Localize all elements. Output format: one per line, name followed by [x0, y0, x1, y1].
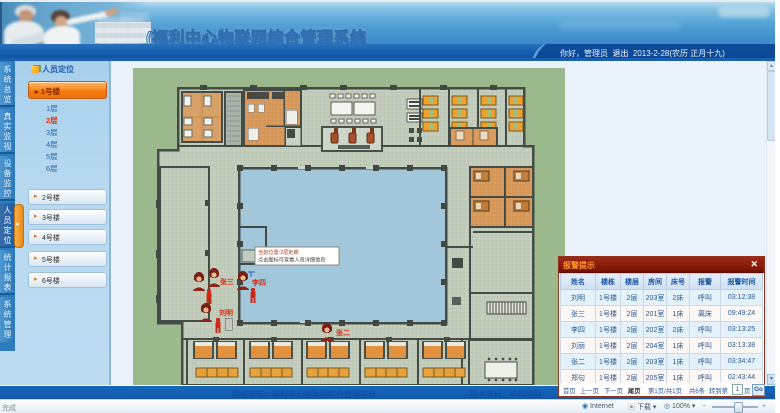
svg-text:当前位置:2层走廊: 当前位置:2层走廊	[258, 248, 299, 256]
svg-text:李四: 李四	[251, 278, 266, 287]
svg-text:点击图标可查看人员详细信息: 点击图标可查看人员详细信息	[258, 256, 325, 264]
svg-text:刘明: 刘明	[219, 308, 233, 317]
svg-text:张二: 张二	[336, 328, 350, 337]
svg-text:张三: 张三	[220, 277, 234, 286]
